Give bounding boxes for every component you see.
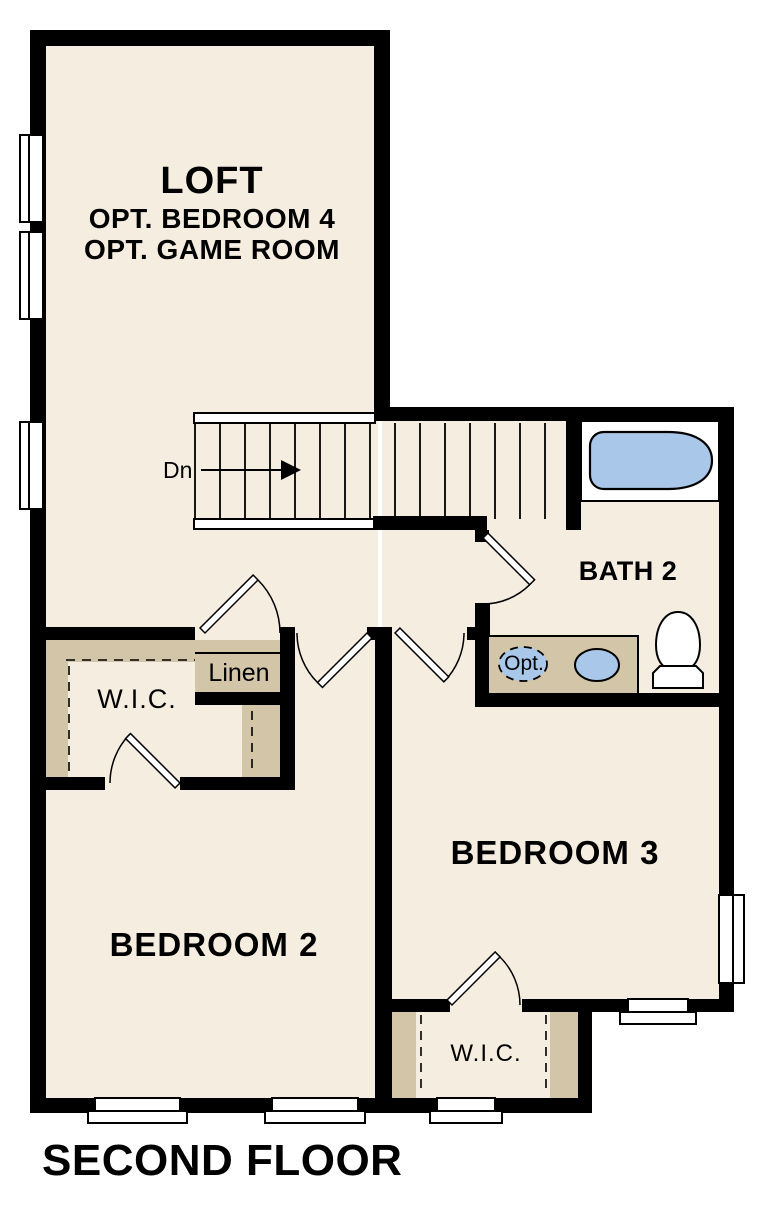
bedroom3-label: BEDROOM 3 [451, 834, 660, 872]
wic-shelf-left [46, 662, 68, 777]
wall-linen-right [280, 627, 295, 790]
linen-label: Linen [208, 659, 269, 688]
loft-option-1: OPT. BEDROOM 4 [84, 203, 340, 234]
wall-stair-bottom [373, 516, 487, 530]
window-hall-left [20, 422, 43, 509]
wic-primary-label: W.I.C. [97, 684, 177, 715]
wic-shelf-right [242, 705, 280, 777]
wall-wic-top [30, 627, 195, 640]
stair-rail-bottom [194, 519, 375, 529]
plan-title: SECOND FLOOR [42, 1136, 402, 1186]
stair-rail-top [194, 413, 375, 423]
wic3-shelf-right [550, 1012, 578, 1098]
wall-wic3-top-b [522, 999, 592, 1012]
wic3-shelf-left [392, 1012, 416, 1098]
bedroom2-label: BEDROOM 2 [110, 926, 319, 964]
wic-bedroom3-label: W.I.C. [450, 1040, 521, 1068]
wall-right-wing-top [374, 407, 734, 421]
window-wic3-bottom [430, 1098, 502, 1123]
loft-room-name: LOFT [84, 160, 340, 203]
wall-bath-left-upper [566, 407, 581, 530]
toilet [653, 612, 703, 688]
bathtub [590, 432, 712, 489]
wall-wic-bottom-b [180, 777, 295, 790]
sink [575, 649, 619, 681]
wall-bath-bottom [475, 693, 734, 707]
stairs-down-label: Dn [163, 457, 192, 484]
floor-plan-page: { "title": "SECOND FLOOR", "rooms": { "l… [0, 0, 772, 1225]
window-bedroom3-bottom [620, 999, 696, 1024]
window-bedroom2-bottom-1 [88, 1098, 187, 1123]
optional-sink-label: Opt. [504, 652, 544, 676]
window-bedroom3-right [719, 895, 744, 983]
wall-exterior-top [30, 30, 390, 46]
wall-wic3-top-a [392, 999, 450, 1012]
loft-option-2: OPT. GAME ROOM [84, 234, 340, 265]
window-loft-left-1 [20, 135, 43, 222]
wall-bedroom-divider [375, 627, 392, 1098]
wall-wic-bottom-a [30, 777, 105, 790]
wall-loft-right [374, 30, 390, 421]
window-bedroom2-bottom-2 [265, 1098, 365, 1123]
loft-label: LOFT OPT. BEDROOM 4 OPT. GAME ROOM [84, 160, 340, 265]
bath2-label: BATH 2 [579, 556, 678, 587]
wall-linen-bottom [195, 692, 280, 705]
wall-wic3-right [578, 999, 592, 1113]
window-loft-left-2 [20, 232, 43, 319]
